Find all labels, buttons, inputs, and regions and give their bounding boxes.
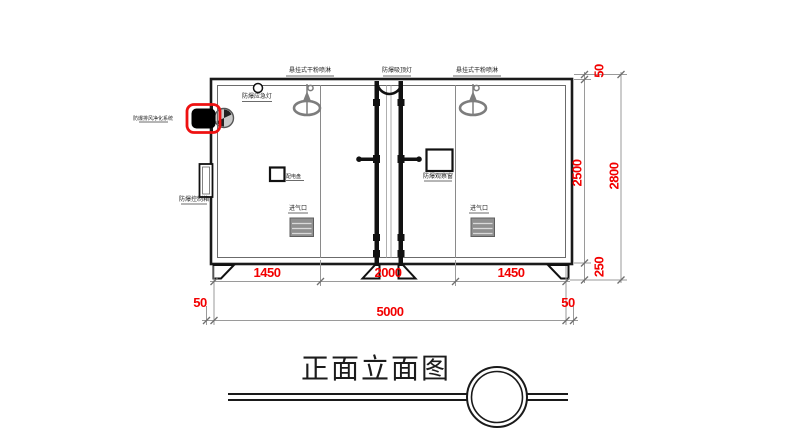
dim-right-top-50: 50 [593, 64, 606, 77]
power-panel-icon [270, 168, 285, 182]
label-ceiling-lamp: 防爆吸顶灯 [382, 68, 412, 75]
dim-right-2800: 2800 [608, 163, 621, 190]
label-control-box: 防爆控制箱 [179, 197, 209, 204]
label-sprinkler-right: 悬挂式干粉喷淋 [456, 68, 498, 75]
dim-right-250: 250 [593, 257, 606, 277]
dim-bottom-1450-left: 1450 [254, 266, 281, 279]
elevation-drawing: 悬挂式干粉喷淋 防爆吸顶灯 悬挂式干粉喷淋 防爆应急灯 防爆排风净化系统 防爆控… [0, 0, 800, 445]
title-bubble-circle [467, 367, 527, 427]
drawing-title: 正面立面图 [301, 354, 451, 386]
label-exhaust-purification: 防爆排风净化系统 [133, 116, 173, 123]
dim-right-2500: 2500 [571, 160, 584, 187]
dim-bottom-margin-left: 50 [193, 296, 206, 309]
label-air-inlet-right: 进气口 [470, 206, 488, 213]
dim-bottom-1450-right: 1450 [498, 266, 525, 279]
emergency-lamp-icon [254, 84, 263, 93]
container-outline [211, 79, 572, 264]
air-inlet-right-icon [471, 218, 495, 237]
label-sprinkler-left: 悬挂式干粉喷淋 [289, 68, 331, 75]
label-power-panel: 配电盘 [286, 174, 301, 181]
label-observation-window: 防爆观察窗 [423, 174, 453, 181]
dim-bottom-margin-right: 50 [561, 296, 574, 309]
label-air-inlet-left: 进气口 [289, 206, 307, 213]
label-emergency-lamp: 防爆应急灯 [242, 94, 272, 101]
dim-bottom-2000: 2000 [375, 266, 402, 279]
control-box-icon [200, 164, 213, 197]
dim-bottom-total: 5000 [377, 305, 404, 318]
air-inlet-left-icon [290, 218, 314, 237]
observation-window-icon [427, 150, 453, 172]
